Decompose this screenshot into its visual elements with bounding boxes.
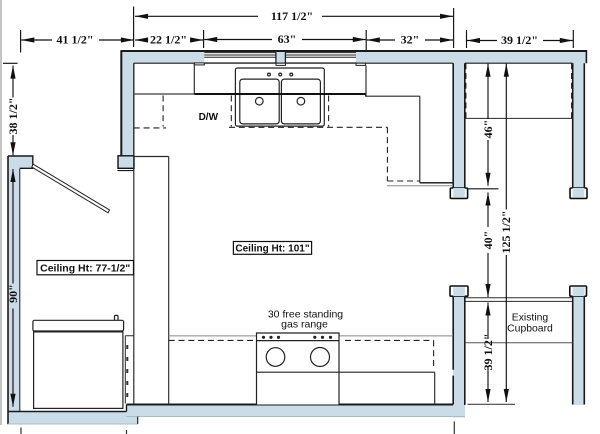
svg-text:38 1/2": 38 1/2": [6, 98, 20, 135]
svg-text:39 1/2": 39 1/2": [481, 334, 495, 371]
svg-text:40": 40": [481, 231, 495, 250]
svg-text:Ceiling Ht: 101": Ceiling Ht: 101": [235, 244, 309, 255]
svg-text:125 1/2": 125 1/2": [499, 211, 513, 254]
svg-text:gas range: gas range: [281, 318, 328, 330]
svg-text:D/W: D/W: [199, 112, 219, 123]
svg-text:41 1/2": 41 1/2": [57, 32, 94, 46]
svg-text:63": 63": [278, 32, 297, 46]
svg-text:32": 32": [401, 32, 420, 46]
svg-text:46": 46": [481, 120, 495, 139]
svg-text:Existing: Existing: [512, 313, 549, 324]
svg-text:39 1/2": 39 1/2": [501, 33, 538, 47]
svg-text:90": 90": [6, 284, 20, 303]
svg-text:117 1/2": 117 1/2": [271, 9, 313, 23]
svg-text:Ceiling Ht: 77-1/2": Ceiling Ht: 77-1/2": [40, 262, 130, 274]
svg-text:Cupboard: Cupboard: [507, 323, 553, 334]
svg-text:22 1/2": 22 1/2": [150, 32, 187, 46]
